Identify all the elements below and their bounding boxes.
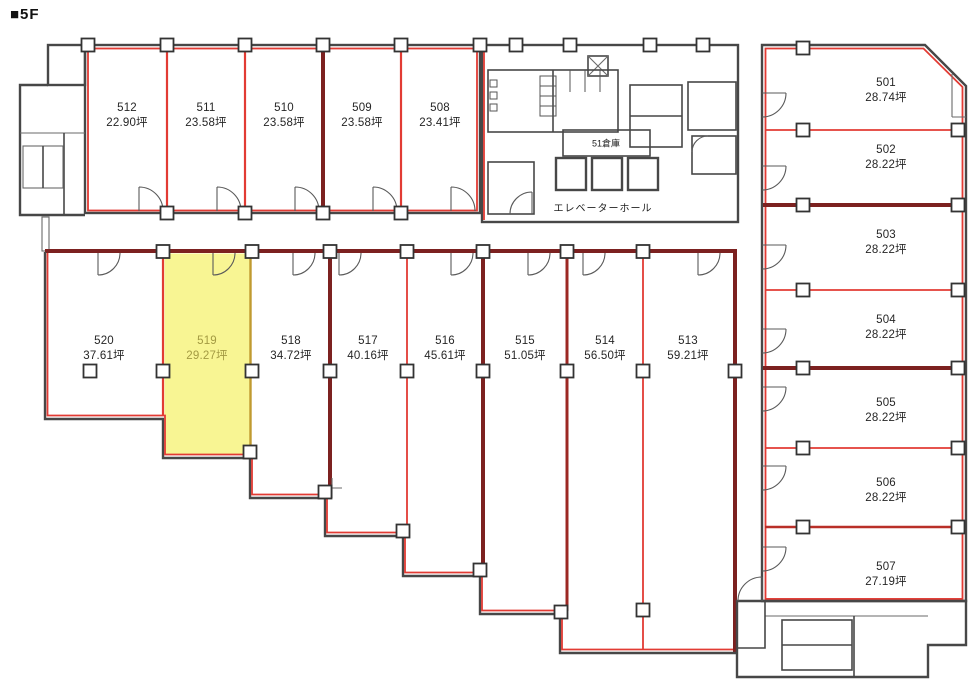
elevator-1-icon xyxy=(556,158,586,190)
room-label-513: 513 59.21坪 xyxy=(667,334,708,364)
room-area: 22.90坪 xyxy=(106,116,147,131)
room-area: 23.58坪 xyxy=(263,116,304,131)
room-label-514: 514 56.50坪 xyxy=(584,334,625,364)
room-area: 23.58坪 xyxy=(341,116,382,131)
room-label-507: 507 27.19坪 xyxy=(865,560,906,590)
elevator-hall-label: エレベーターホール xyxy=(554,200,653,215)
room-area: 45.61坪 xyxy=(424,349,465,364)
room-number: 517 xyxy=(347,334,388,349)
room-number: 510 xyxy=(263,101,304,116)
annex-outer-wall xyxy=(20,85,85,215)
floor-title: ■5F xyxy=(10,6,40,23)
room-area: 28.22坪 xyxy=(865,491,906,506)
room-number: 513 xyxy=(667,334,708,349)
room-label-517: 517 40.16坪 xyxy=(347,334,388,364)
room-number: 512 xyxy=(106,101,147,116)
room-number: 514 xyxy=(584,334,625,349)
middle-band xyxy=(45,251,737,653)
room-label-508: 508 23.41坪 xyxy=(419,101,460,131)
room-label-510: 510 23.58坪 xyxy=(263,101,304,131)
room-area: 40.16坪 xyxy=(347,349,388,364)
middle-band-step-wall xyxy=(45,252,736,653)
room-area: 34.72坪 xyxy=(270,349,311,364)
annex-connector xyxy=(42,217,49,251)
middle-band-lease-outline xyxy=(48,253,734,650)
room-area: 59.21坪 xyxy=(667,349,708,364)
room-number: 507 xyxy=(865,560,906,575)
se-vestibule xyxy=(737,601,765,648)
room-label-516: 516 45.61坪 xyxy=(424,334,465,364)
room-label-518: 518 34.72坪 xyxy=(270,334,311,364)
room-label-520: 520 37.61坪 xyxy=(83,334,124,364)
room-number: 503 xyxy=(865,228,906,243)
elevator-2-icon xyxy=(592,158,622,190)
room-area: 23.41坪 xyxy=(419,116,460,131)
room-number: 506 xyxy=(865,476,906,491)
core-service-room xyxy=(692,136,736,174)
corner-room xyxy=(48,45,85,85)
room-area: 37.61坪 xyxy=(83,349,124,364)
elevator-3-icon xyxy=(628,158,658,190)
room-area: 29.27坪 xyxy=(186,349,227,364)
room-number: 516 xyxy=(424,334,465,349)
room-label-506: 506 28.22坪 xyxy=(865,476,906,506)
room-area: 56.50坪 xyxy=(584,349,625,364)
room-number: 511 xyxy=(185,101,226,116)
room-area: 51.05坪 xyxy=(504,349,545,364)
room-area: 27.19坪 xyxy=(865,575,906,590)
room-number: 504 xyxy=(865,313,906,328)
ev-machine-room xyxy=(688,82,736,130)
west-stair-annex xyxy=(20,45,85,251)
core-block xyxy=(482,45,738,222)
right-wing-party-walls xyxy=(763,205,964,368)
room-label-502: 502 28.22坪 xyxy=(865,143,906,173)
room-area: 28.22坪 xyxy=(865,158,906,173)
room-label-509: 509 23.58坪 xyxy=(341,101,382,131)
room-label-512: 512 22.90坪 xyxy=(106,101,147,131)
right-wing-red-dividers xyxy=(765,130,962,448)
floorplan-page: ■5F 512 22.90坪 511 23.58坪 510 23.58坪 509… xyxy=(0,0,980,686)
room-number: 518 xyxy=(270,334,311,349)
room-label-511: 511 23.58坪 xyxy=(185,101,226,131)
room-number: 502 xyxy=(865,143,906,158)
storage-label: 51倉庫 xyxy=(592,137,620,150)
right-wing-outer-wall xyxy=(762,45,966,601)
room-label-504: 504 28.22坪 xyxy=(865,313,906,343)
room-number: 509 xyxy=(341,101,382,116)
room-area: 28.22坪 xyxy=(865,411,906,426)
room-number: 520 xyxy=(83,334,124,349)
right-wing xyxy=(762,45,966,601)
room-area: 28.22坪 xyxy=(865,328,906,343)
room-number: 508 xyxy=(419,101,460,116)
room-label-519-highlighted: 519 29.27坪 xyxy=(186,334,227,364)
room-label-501: 501 28.74坪 xyxy=(865,76,906,106)
room-number: 515 xyxy=(504,334,545,349)
room-area: 23.58坪 xyxy=(185,116,226,131)
room-number: 505 xyxy=(865,396,906,411)
room-label-515: 515 51.05坪 xyxy=(504,334,545,364)
right-wing-lease-outline xyxy=(766,49,963,600)
room-number: 501 xyxy=(865,76,906,91)
room-area: 28.22坪 xyxy=(865,243,906,258)
room-number: 519 xyxy=(186,334,227,349)
room-label-503: 503 28.22坪 xyxy=(865,228,906,258)
room-label-505: 505 28.22坪 xyxy=(865,396,906,426)
room-area: 28.74坪 xyxy=(865,91,906,106)
southeast-stair-block xyxy=(737,577,966,677)
